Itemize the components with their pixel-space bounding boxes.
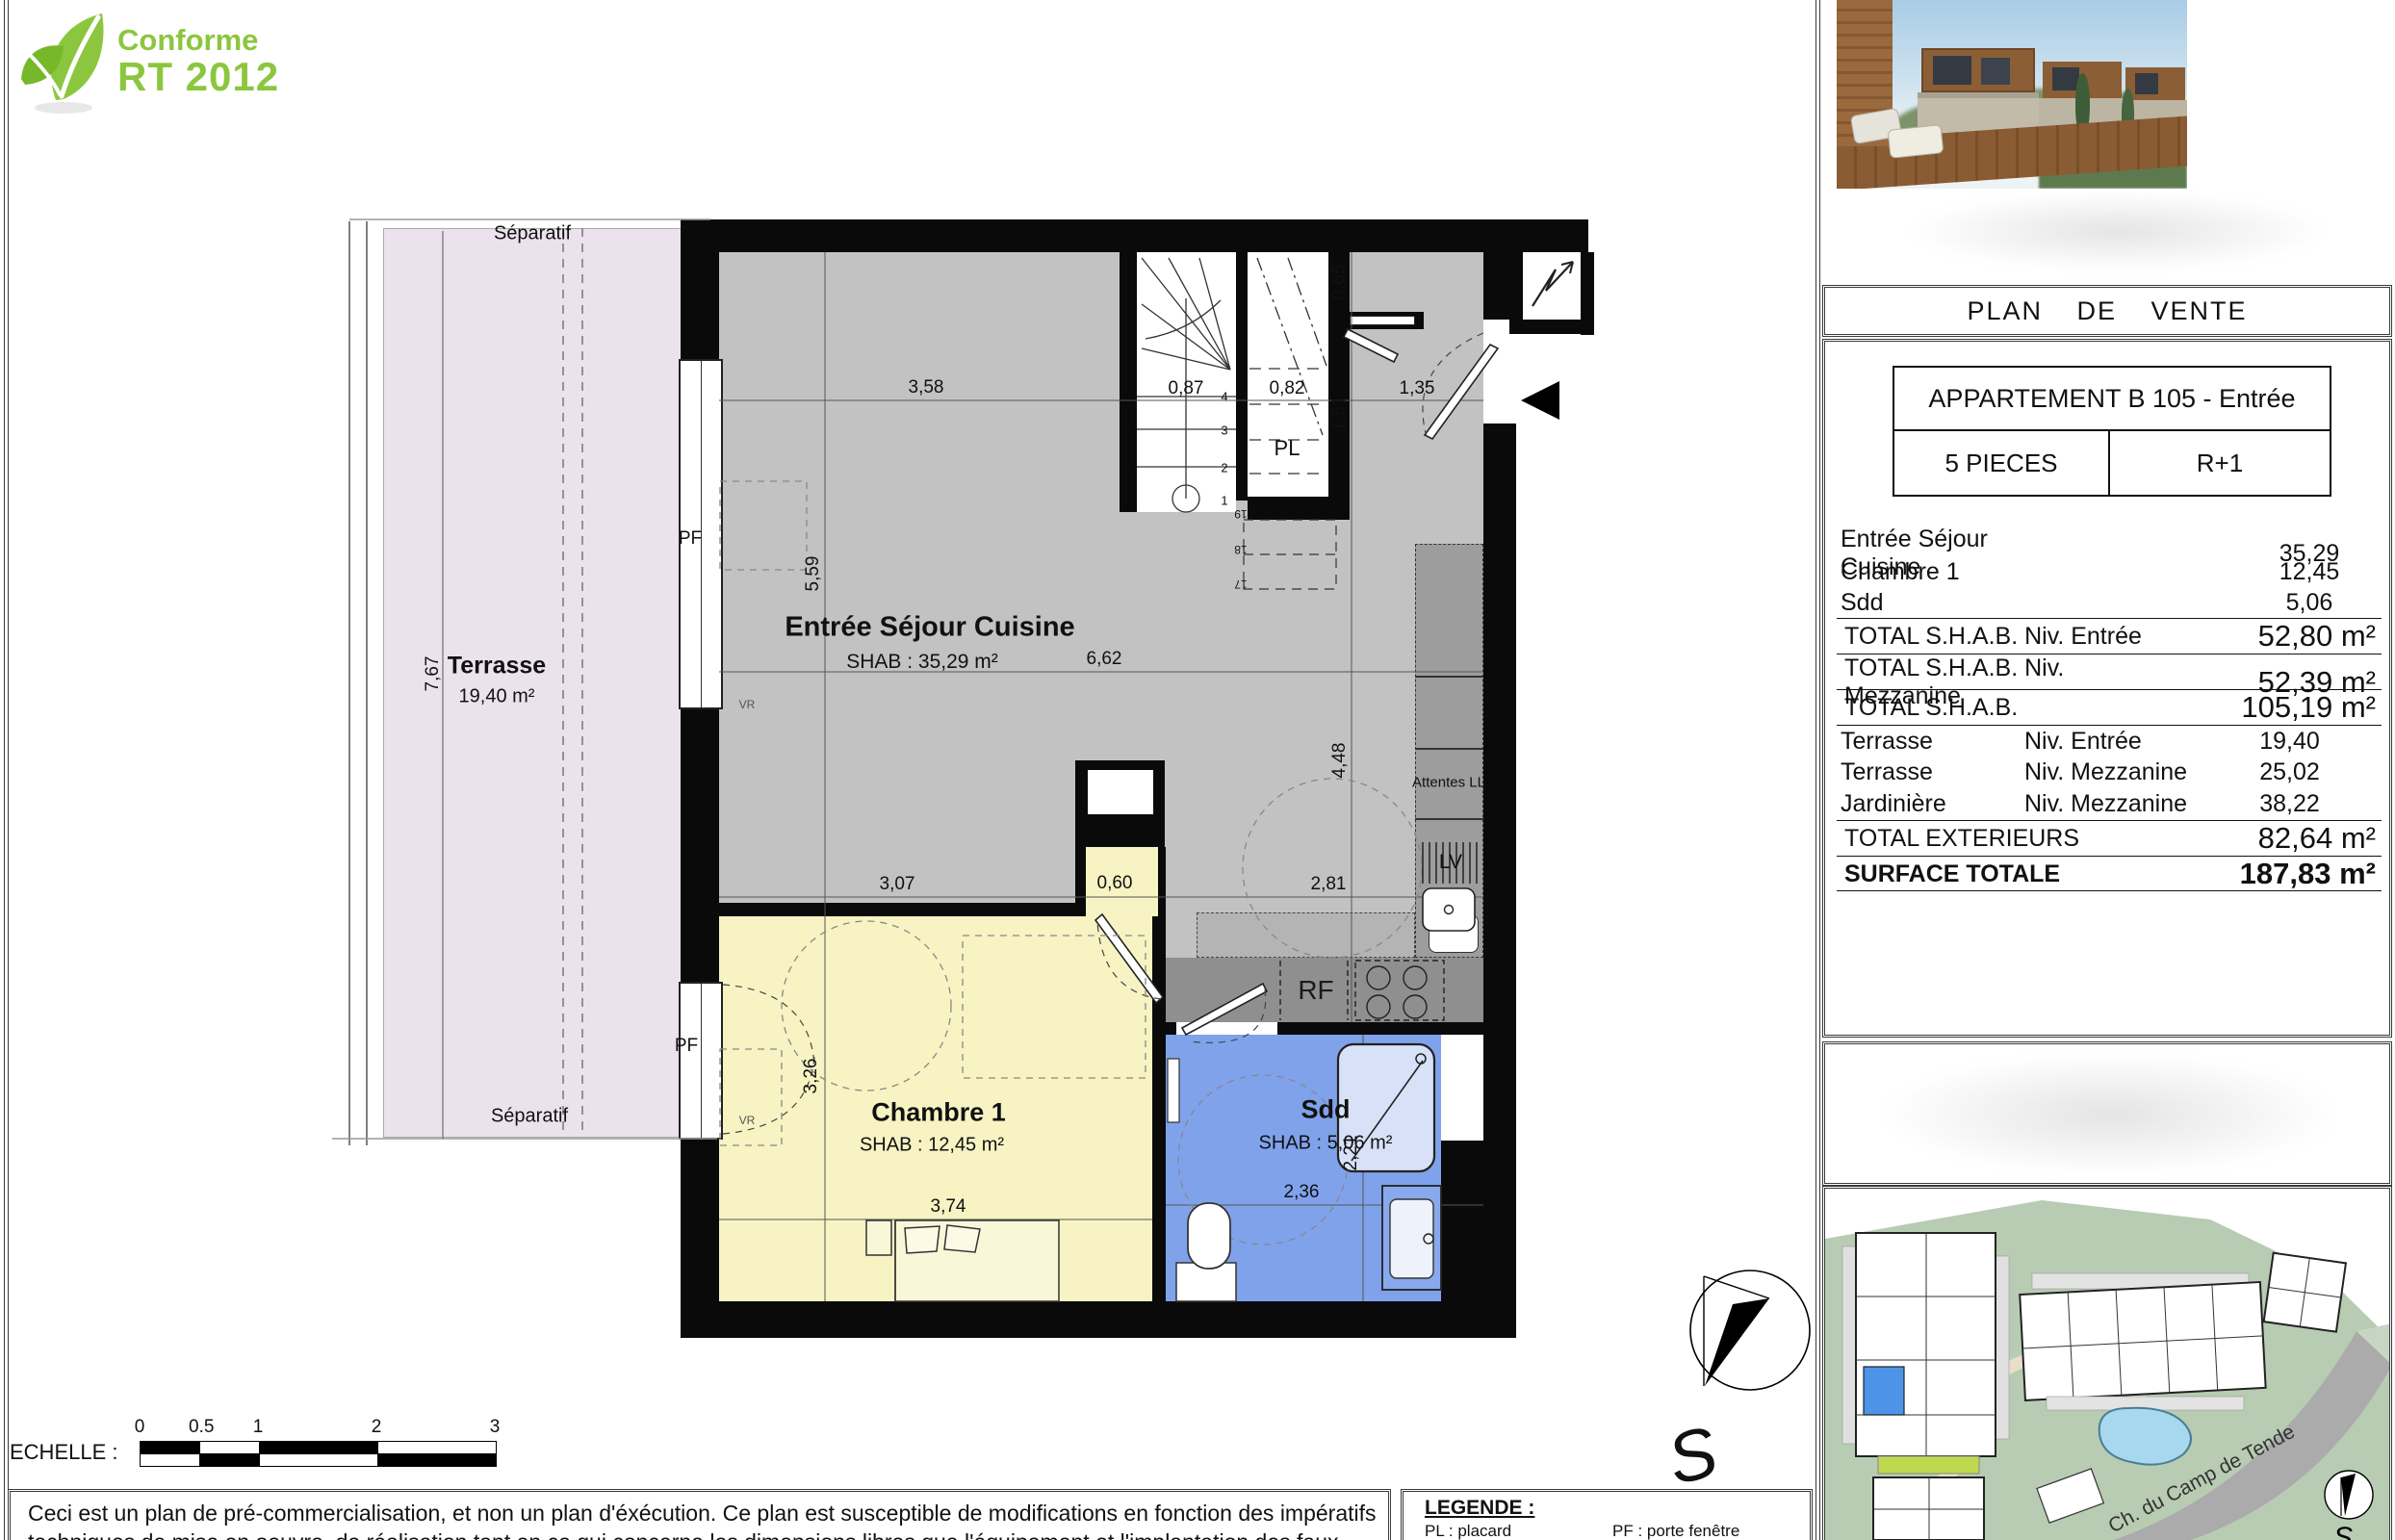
scale-tick: 0.5 bbox=[189, 1417, 208, 1438]
table-row-total: TOTAL S.H.A.B. Niv. Entrée52,80 m² bbox=[1837, 618, 2382, 654]
table-row-total: TOTAL S.H.A.B.105,19 m² bbox=[1837, 689, 2382, 725]
legend-item: PL : placard bbox=[1425, 1520, 1612, 1540]
terrasse-name: Terrasse bbox=[448, 653, 546, 680]
plan-linework bbox=[0, 0, 1817, 1540]
scale-bar bbox=[140, 1441, 497, 1467]
scale-tick: 2 bbox=[367, 1417, 386, 1438]
highlighted-unit bbox=[1864, 1367, 1904, 1415]
table-row: Chambre 112,45 bbox=[1837, 556, 2382, 587]
dim-label: 1,51 bbox=[1329, 397, 1351, 432]
scale-tick: 1 bbox=[248, 1417, 268, 1438]
faded-logo-area bbox=[1911, 192, 2325, 269]
separatif-label-top: Séparatif bbox=[494, 223, 571, 245]
dim-label: 0,65 bbox=[1329, 265, 1351, 300]
sejour-name: Entrée Séjour Cuisine bbox=[785, 612, 1074, 644]
photo-house3-window bbox=[2135, 73, 2158, 94]
plan-de-vente-page: Conforme RT 2012 bbox=[0, 0, 2395, 1540]
stair-step-4: 4 bbox=[1221, 390, 1227, 404]
table-row-surface-totale: SURFACE TOTALE187,83 m² bbox=[1837, 856, 2382, 891]
blank-box bbox=[1822, 1041, 2392, 1186]
faded-logo-area-2 bbox=[1883, 1054, 2335, 1174]
vr-label-sejour: VR bbox=[739, 698, 756, 711]
apartment-title: APPARTEMENT B 105 - Entrée bbox=[1894, 368, 2330, 431]
dim-label: 2,81 bbox=[1311, 874, 1347, 895]
scale-tick: 3 bbox=[485, 1417, 504, 1438]
dim-label: 1,35 bbox=[1400, 378, 1435, 399]
stair-step-2: 2 bbox=[1221, 461, 1227, 475]
surface-table: Entrée Séjour Cuisine35,29 Chambre 112,4… bbox=[1837, 526, 2382, 891]
rf-label: RF bbox=[1298, 975, 1333, 1006]
dim-label: 2,21 bbox=[1341, 1136, 1362, 1171]
stair-step-3: 3 bbox=[1221, 423, 1227, 438]
stair-step-1: 1 bbox=[1221, 494, 1227, 508]
vr-label-chambre: VR bbox=[739, 1114, 756, 1127]
project-photo bbox=[1837, 0, 2187, 189]
table-row: JardinièreNiv. Mezzanine38,22 bbox=[1837, 788, 2382, 820]
table-row-total: TOTAL S.H.A.B. Niv. Mezzanine52,39 m² bbox=[1837, 654, 2382, 689]
north-compass-icon bbox=[1690, 1270, 1810, 1390]
pf-label-chambre: PF bbox=[675, 1036, 698, 1057]
floor-plan: Séparatif Séparatif Terrasse 19,40 m² En… bbox=[0, 0, 1817, 1540]
site-compass-south: S bbox=[2333, 1522, 2353, 1540]
dim-label: 0,60 bbox=[1097, 873, 1133, 894]
site-plan: Ch. du Camp de Tende S bbox=[1822, 1186, 2392, 1540]
photo-house1-window bbox=[1933, 56, 1971, 85]
apartment-pieces: 5 PIECES bbox=[1894, 431, 2110, 495]
terrasse-area: 19,40 m² bbox=[459, 686, 535, 708]
sejour-shab: SHAB : 35,29 m² bbox=[846, 651, 998, 674]
apartment-header: APPARTEMENT B 105 - Entrée 5 PIECES R+1 bbox=[1893, 366, 2331, 497]
dim-label: 4,48 bbox=[1329, 743, 1351, 779]
dim-label: 3,07 bbox=[880, 874, 915, 895]
legend-title: LEGENDE : bbox=[1425, 1497, 1810, 1520]
table-row: Entrée Séjour Cuisine35,29 bbox=[1837, 526, 2382, 556]
dim-label: 3,58 bbox=[909, 377, 944, 398]
legend-item: PF : porte fenêtre bbox=[1612, 1520, 1739, 1540]
photo-house2-window bbox=[2052, 67, 2079, 90]
disclaimer-line1: Ceci est un plan de pré-commercialisatio… bbox=[28, 1499, 1388, 1527]
mezz-step-19: 19 bbox=[1234, 507, 1247, 521]
disclaimer-line2: techniques de mise en oeuvre, de réalisa… bbox=[28, 1527, 1388, 1540]
chambre-shab: SHAB : 12,45 m² bbox=[860, 1135, 1004, 1157]
table-row: TerrasseNiv. Mezzanine25,02 bbox=[1837, 757, 2382, 788]
scale-label: ECHELLE : bbox=[10, 1440, 118, 1465]
mezz-step-18: 18 bbox=[1234, 543, 1247, 556]
dim-label: 3,74 bbox=[931, 1196, 966, 1218]
chambre-name: Chambre 1 bbox=[871, 1098, 1006, 1128]
dim-label: 3,26 bbox=[801, 1059, 822, 1094]
apartment-level: R+1 bbox=[2110, 431, 2330, 495]
dim-label: 2,36 bbox=[1284, 1182, 1320, 1203]
separatif-label-bottom: Séparatif bbox=[491, 1106, 568, 1128]
panel-divider bbox=[1816, 0, 1820, 1540]
disclaimer: Ceci est un plan de pré-commercialisatio… bbox=[8, 1489, 1391, 1540]
table-row: TerrasseNiv. Entrée19,40 bbox=[1837, 725, 2382, 757]
table-row: Sdd5,06 bbox=[1837, 587, 2382, 618]
site-plan-drawing: Ch. du Camp de Tende S bbox=[1825, 1189, 2392, 1540]
sdd-name: Sdd bbox=[1301, 1095, 1351, 1125]
photo-chair2 bbox=[1888, 124, 1944, 159]
legend: LEGENDE : PL : placard LL : lave-linge P… bbox=[1401, 1489, 1813, 1540]
dim-label: 5,59 bbox=[803, 556, 824, 592]
photo-house1-window2 bbox=[1981, 58, 2010, 85]
table-row-total: TOTAL EXTERIEURS82,64 m² bbox=[1837, 820, 2382, 856]
sdd-shab: SHAB : 5,06 m² bbox=[1259, 1133, 1393, 1155]
pf-label-sejour: PF bbox=[679, 528, 702, 550]
dim-label: 6,62 bbox=[1087, 649, 1122, 670]
plan-de-vente-box: PLAN DE VENTE bbox=[1822, 285, 2392, 337]
page-title: PLAN DE VENTE bbox=[1967, 296, 2247, 326]
attentes-ll-label: Attentes LL bbox=[1412, 775, 1485, 791]
mezz-step-17: 17 bbox=[1234, 577, 1247, 591]
dim-label: 0,87 bbox=[1169, 378, 1204, 399]
placard-label: PL bbox=[1275, 436, 1301, 461]
scale-tick: 0 bbox=[130, 1417, 149, 1438]
dim-label: 0,82 bbox=[1270, 378, 1305, 399]
lv-label: LV bbox=[1439, 851, 1462, 874]
dim-label: 7,67 bbox=[423, 656, 444, 692]
